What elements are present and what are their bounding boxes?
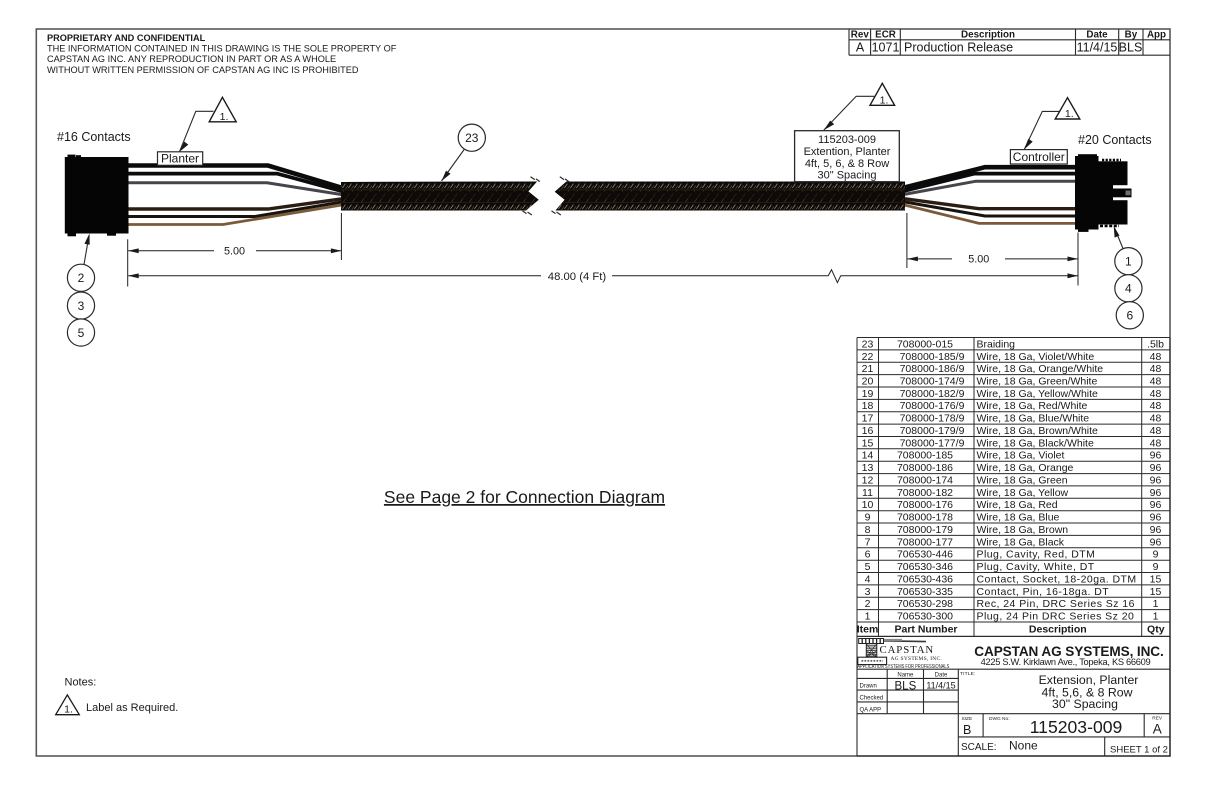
svg-text:Wire, 18 Ga, Blue/White: Wire, 18 Ga, Blue/White: [977, 413, 1090, 425]
svg-text:708000-185: 708000-185: [897, 450, 953, 462]
svg-text:706530-446: 706530-446: [897, 549, 953, 561]
svg-text:48: 48: [1150, 363, 1162, 375]
svg-text:6: 6: [865, 549, 871, 561]
svg-text:APPLICATION SYSTEMS FOR PROFES: APPLICATION SYSTEMS FOR PROFESSIONALS: [857, 664, 949, 670]
svg-text:Wire, 18 Ga, Yellow: Wire, 18 Ga, Yellow: [977, 487, 1069, 499]
svg-text:1: 1: [1125, 255, 1132, 269]
svg-text:Plug, Cavity, Red, DTM: Plug, Cavity, Red, DTM: [977, 549, 1096, 561]
svg-text:A: A: [856, 41, 865, 55]
svg-text:48: 48: [1150, 376, 1162, 388]
svg-text:BLS: BLS: [895, 680, 917, 692]
svg-text:Controller: Controller: [1013, 150, 1065, 164]
svg-text:None: None: [1009, 738, 1038, 752]
svg-text:.5lb: .5lb: [1147, 338, 1164, 350]
svg-text:DWG No:: DWG No:: [989, 716, 1010, 722]
svg-text:96: 96: [1150, 536, 1162, 548]
svg-text:96: 96: [1150, 524, 1162, 536]
svg-text:48.00 (4 Ft): 48.00 (4 Ft): [548, 271, 607, 283]
svg-text:WITHOUT WRITTEN PERMISSION OF: WITHOUT WRITTEN PERMISSION OF CAPSTAN AG…: [47, 65, 359, 75]
svg-text:708000-185/9: 708000-185/9: [900, 351, 965, 363]
svg-text:Wire, 18 Ga, Black/White: Wire, 18 Ga, Black/White: [977, 437, 1094, 449]
svg-text:708000-174: 708000-174: [897, 475, 953, 487]
svg-text:48: 48: [1150, 400, 1162, 412]
svg-text:Wire, 18 Ga, Violet: Wire, 18 Ga, Violet: [977, 450, 1065, 462]
svg-text:Wire, 18 Ga, Blue: Wire, 18 Ga, Blue: [977, 512, 1060, 524]
svg-text:TITLE:: TITLE:: [960, 671, 976, 677]
svg-text:Item: Item: [857, 624, 879, 636]
svg-text:1.: 1.: [1065, 108, 1074, 120]
svg-text:1.: 1.: [220, 111, 229, 123]
svg-text:Notes:: Notes:: [65, 677, 97, 689]
svg-text:30" Spacing: 30" Spacing: [818, 170, 877, 182]
svg-text:B: B: [963, 723, 971, 737]
svg-text:1071: 1071: [872, 41, 900, 55]
svg-text:App: App: [1147, 29, 1166, 40]
svg-text:708000-176: 708000-176: [897, 499, 953, 511]
svg-text:3: 3: [78, 299, 85, 313]
svg-text:96: 96: [1150, 499, 1162, 511]
svg-text:3: 3: [865, 586, 871, 598]
svg-text:Wire, 18 Ga, Green/White: Wire, 18 Ga, Green/White: [977, 376, 1098, 388]
svg-text:CAPSTAN AG INC. ANY REPRODUCTI: CAPSTAN AG INC. ANY REPRODUCTION IN PART…: [47, 54, 336, 64]
svg-text:9: 9: [865, 512, 871, 524]
svg-text:SCALE:: SCALE:: [961, 742, 997, 753]
svg-text:CAPSTAN: CAPSTAN: [880, 644, 935, 656]
svg-text:A: A: [1153, 722, 1162, 737]
svg-text:48: 48: [1150, 437, 1162, 449]
svg-text:11/4/15: 11/4/15: [926, 681, 955, 691]
svg-text:ECR: ECR: [875, 29, 896, 40]
svg-text:708000-186/9: 708000-186/9: [900, 363, 965, 375]
svg-text:5: 5: [78, 326, 85, 340]
svg-text:4: 4: [1125, 282, 1132, 296]
svg-text:708000-179: 708000-179: [897, 524, 953, 536]
svg-text:Wire, 18 Ga, Black: Wire, 18 Ga, Black: [977, 536, 1065, 548]
svg-text:6: 6: [1126, 309, 1133, 323]
svg-text:115203-009: 115203-009: [1030, 717, 1123, 737]
svg-text:708000-182/9: 708000-182/9: [900, 388, 965, 400]
svg-text:15: 15: [862, 437, 874, 449]
svg-text:115203-009: 115203-009: [818, 134, 876, 146]
svg-text:Wire, 18 Ga, Green: Wire, 18 Ga, Green: [977, 475, 1068, 487]
svg-text:Contact, Socket, 18-20ga. DTM: Contact, Socket, 18-20ga. DTM: [977, 573, 1137, 585]
svg-text:Name: Name: [897, 673, 914, 679]
svg-text:Part Number: Part Number: [894, 624, 957, 636]
svg-text:11: 11: [862, 487, 873, 499]
svg-text:1: 1: [865, 611, 871, 623]
svg-text:706530-300: 706530-300: [897, 611, 953, 623]
svg-text:BLS: BLS: [1119, 41, 1143, 55]
svg-text:8: 8: [865, 524, 871, 536]
svg-text:708000-182: 708000-182: [897, 487, 953, 499]
svg-text:Rev: Rev: [851, 29, 870, 40]
svg-text:Planter: Planter: [161, 151, 199, 165]
svg-text:708000-177/9: 708000-177/9: [900, 437, 965, 449]
svg-text:Wire, 18 Ga, Orange/White: Wire, 18 Ga, Orange/White: [977, 363, 1104, 375]
svg-text:PROPRIETARY AND CONFIDENTIAL: PROPRIETARY AND CONFIDENTIAL: [47, 33, 206, 43]
svg-text:5.00: 5.00: [968, 254, 989, 266]
svg-text:By: By: [1125, 29, 1138, 40]
svg-text:Wire, 18 Ga, Orange: Wire, 18 Ga, Orange: [977, 462, 1074, 474]
svg-text:Qty: Qty: [1147, 624, 1165, 636]
svg-text:706530-346: 706530-346: [897, 561, 953, 573]
svg-text:96: 96: [1150, 462, 1162, 474]
svg-text:4225 S.W. Kirklawn Ave., Topek: 4225 S.W. Kirklawn Ave., Topeka, KS 6660…: [981, 657, 1151, 667]
svg-text:708000-186: 708000-186: [897, 462, 953, 474]
svg-text:14: 14: [862, 450, 874, 462]
svg-text:2: 2: [865, 598, 871, 610]
svg-text:Wire, 18 Ga, Red: Wire, 18 Ga, Red: [977, 499, 1058, 511]
svg-text:Plug, Cavity, White, DT: Plug, Cavity, White, DT: [977, 561, 1095, 573]
svg-text:Wire, 18 Ga, Red/White: Wire, 18 Ga, Red/White: [977, 400, 1088, 412]
svg-text:17: 17: [862, 413, 874, 425]
svg-text:2: 2: [78, 271, 85, 285]
svg-text:Label as Required.: Label as Required.: [86, 702, 178, 714]
svg-text:706530-335: 706530-335: [897, 586, 953, 598]
svg-text:23: 23: [465, 131, 479, 145]
svg-text:Production Release: Production Release: [904, 41, 1013, 55]
svg-text:See Page 2 for Connection Diag: See Page 2 for Connection Diagram: [384, 487, 665, 507]
svg-text:708000-177: 708000-177: [897, 536, 953, 548]
svg-text:21: 21: [862, 363, 874, 375]
svg-text:48: 48: [1150, 388, 1162, 400]
svg-text:18: 18: [862, 400, 874, 412]
svg-text:13: 13: [862, 462, 874, 474]
svg-text:708000-015: 708000-015: [897, 338, 953, 350]
svg-text:48: 48: [1150, 413, 1162, 425]
svg-text:Description: Description: [961, 29, 1015, 40]
svg-text:THE INFORMATION CONTAINED IN T: THE INFORMATION CONTAINED IN THIS DRAWIN…: [47, 44, 397, 54]
svg-text:708000-178/9: 708000-178/9: [900, 413, 965, 425]
svg-text:708000-176/9: 708000-176/9: [900, 400, 965, 412]
svg-text:12: 12: [862, 475, 874, 487]
svg-text:10: 10: [862, 499, 874, 511]
svg-text:Wire, 18 Ga, Violet/White: Wire, 18 Ga, Violet/White: [977, 351, 1095, 363]
svg-text:1.: 1.: [880, 95, 889, 107]
svg-text:9: 9: [1153, 549, 1159, 561]
svg-text:QA APP: QA APP: [860, 707, 882, 713]
svg-text:19: 19: [862, 388, 874, 400]
svg-text:SIZE: SIZE: [962, 716, 973, 722]
svg-text:48: 48: [1150, 351, 1162, 363]
svg-text:1: 1: [1153, 611, 1159, 623]
svg-text:Extention, Planter: Extention, Planter: [804, 146, 891, 158]
svg-text:5.00: 5.00: [224, 246, 245, 258]
svg-text:11/4/15: 11/4/15: [1077, 41, 1118, 55]
svg-text:23: 23: [862, 338, 874, 350]
svg-text:9: 9: [1153, 561, 1159, 573]
svg-text:Drawn: Drawn: [860, 684, 877, 690]
svg-text:5: 5: [865, 561, 871, 573]
svg-text:Braiding: Braiding: [977, 338, 1016, 350]
svg-text:Rec, 24 Pin, DRC Series Sz 16: Rec, 24 Pin, DRC Series Sz 16: [977, 598, 1135, 610]
svg-text:Description: Description: [1029, 624, 1087, 636]
svg-text:1.: 1.: [64, 703, 73, 715]
svg-text:708000-174/9: 708000-174/9: [900, 376, 965, 388]
svg-text:48: 48: [1150, 425, 1162, 437]
svg-text:708000-179/9: 708000-179/9: [900, 425, 965, 437]
svg-text:#16 Contacts: #16 Contacts: [57, 130, 131, 144]
svg-text:Wire, 18 Ga, Yellow/White: Wire, 18 Ga, Yellow/White: [977, 388, 1099, 400]
svg-text:Contact, Pin, 16-18ga. DT: Contact, Pin, 16-18ga. DT: [977, 586, 1110, 598]
svg-text:Plug, 24 Pin DRC Series Sz 20: Plug, 24 Pin DRC Series Sz 20: [977, 611, 1135, 623]
svg-text:96: 96: [1150, 487, 1162, 499]
svg-text:22: 22: [862, 351, 874, 363]
svg-text:1: 1: [1153, 598, 1159, 610]
svg-text:15: 15: [1150, 573, 1162, 585]
svg-text:706530-298: 706530-298: [897, 598, 953, 610]
svg-text:Checked: Checked: [860, 696, 884, 702]
svg-text:4ft, 5, 6, & 8 Row: 4ft, 5, 6, & 8 Row: [805, 158, 889, 170]
svg-text:96: 96: [1150, 512, 1162, 524]
svg-text:#20 Contacts: #20 Contacts: [1078, 133, 1152, 147]
svg-text:15: 15: [1150, 586, 1162, 598]
svg-text:706530-436: 706530-436: [897, 573, 953, 585]
svg-text:708000-178: 708000-178: [897, 512, 953, 524]
svg-text:96: 96: [1150, 450, 1162, 462]
svg-text:7: 7: [865, 536, 871, 548]
svg-text:20: 20: [862, 376, 874, 388]
svg-text:30" Spacing: 30" Spacing: [1052, 697, 1118, 711]
svg-text:16: 16: [862, 425, 874, 437]
svg-text:Date: Date: [1086, 29, 1108, 40]
svg-text:SHEET 1 of 2: SHEET 1 of 2: [1110, 745, 1168, 756]
svg-text:Wire, 18 Ga, Brown/White: Wire, 18 Ga, Brown/White: [977, 425, 1099, 437]
svg-text:96: 96: [1150, 475, 1162, 487]
svg-text:Date: Date: [935, 673, 948, 679]
svg-text:4: 4: [865, 573, 871, 585]
svg-text:AG SYSTEMS, INC.: AG SYSTEMS, INC.: [891, 656, 943, 662]
svg-text:Wire, 18 Ga, Brown: Wire, 18 Ga, Brown: [977, 524, 1069, 536]
